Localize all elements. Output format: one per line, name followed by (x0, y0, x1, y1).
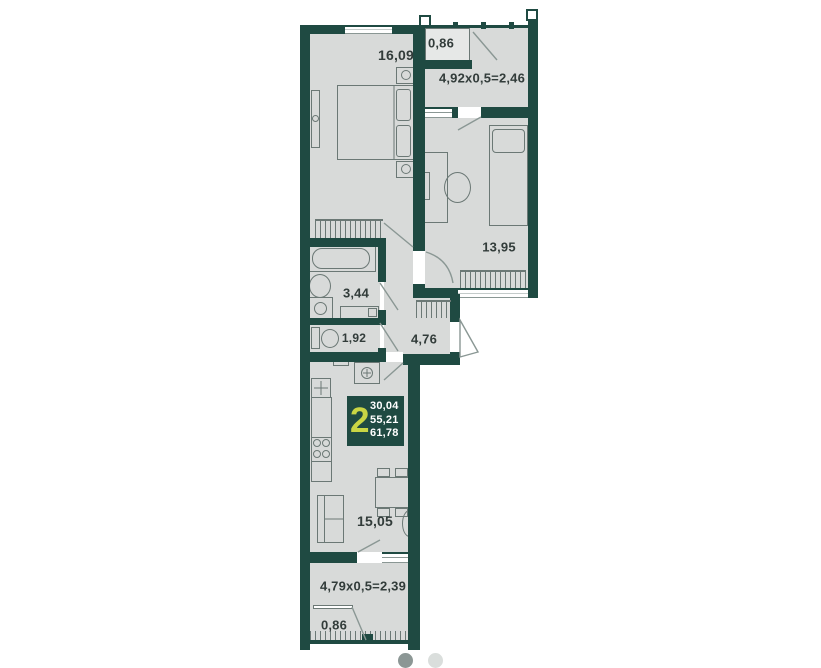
label-bedroom-main: 16,09 (378, 47, 414, 63)
toilet-tank (311, 327, 320, 349)
area-total: 61,78 (370, 427, 399, 441)
door-opening-bedroom-second (413, 251, 425, 284)
dresser-knob (312, 115, 319, 122)
bed-pillow-1 (396, 89, 411, 121)
window-balcony-top (425, 107, 452, 118)
label-balcony-bottom: 4,79x0,5=2,39 (320, 579, 406, 594)
wall-bath-toilet-divider (300, 318, 386, 325)
burner-3 (313, 450, 321, 458)
wall-bathroom-top (300, 238, 386, 247)
door-opening-kitchen (386, 352, 403, 362)
window-kitchen (382, 552, 408, 563)
entrance-opening (450, 322, 460, 352)
bathtub-inner (312, 248, 370, 269)
area-values: 30,04 55,21 61,78 (370, 400, 399, 441)
door-opening-balcony-top (458, 107, 481, 118)
bathroom-sink (309, 274, 331, 298)
entrance-door-leaf (460, 320, 478, 357)
label-toilet: 1,92 (342, 331, 366, 345)
wardrobe-hall (416, 300, 451, 318)
window-bedroom-second (458, 288, 528, 298)
label-balcony-top-closet: 0,86 (428, 36, 454, 51)
glazing-mullion-3 (509, 22, 514, 29)
nightstand-2-lamp (401, 164, 411, 174)
bathroom-cabinet-end (368, 308, 377, 317)
balcony-glazing-bottom (310, 640, 408, 644)
nightstand-1-lamp (401, 70, 411, 80)
glazing-post-left (419, 15, 431, 27)
label-bedroom-second: 13,95 (482, 240, 516, 255)
desk-chair (444, 172, 471, 203)
wall-bathroom-right-a (378, 240, 386, 282)
carousel-dot-inactive[interactable] (428, 653, 443, 668)
burner-1 (313, 439, 321, 447)
kitchen-sink-bowl (361, 367, 373, 379)
door-opening-balcony-bottom (357, 552, 382, 563)
wall-closet-top (420, 60, 472, 69)
window-bedroom-main (345, 25, 392, 34)
single-bed-pillow (492, 129, 525, 153)
dining-table (375, 477, 410, 508)
fridge (311, 378, 331, 398)
label-bathroom: 3,44 (343, 286, 369, 301)
wall-bedrooms-divider (413, 25, 425, 251)
room-corridor (384, 240, 414, 300)
area-main: 55,21 (370, 414, 399, 428)
wall-right (528, 20, 538, 298)
bed-pillow-2 (396, 125, 411, 157)
wall-toilet-bottom (300, 352, 386, 362)
label-balcony-top: 4,92x0,5=2,46 (439, 71, 525, 86)
burner-4 (322, 450, 330, 458)
chair-top-2 (395, 468, 408, 477)
wall-balcony-room-divider (481, 107, 538, 118)
carousel-dot-active[interactable] (398, 653, 413, 668)
burner-2 (322, 439, 330, 447)
balcony-glazing-bottom-post (362, 634, 373, 644)
label-hall: 4,76 (411, 332, 437, 347)
chair-top-1 (377, 468, 390, 477)
unit-area-badge: 2 30,04 55,21 61,78 (347, 396, 404, 446)
toilet-bowl (321, 329, 339, 348)
shelf-balcony-bottom (313, 605, 353, 609)
wall-entrance-top (450, 294, 460, 322)
wall-kitchen-right (408, 360, 420, 650)
label-kitchen-living: 15,05 (357, 513, 393, 529)
area-living: 30,04 (370, 400, 399, 414)
rooms-count: 2 (350, 398, 369, 444)
label-balcony-bottom-closet: 0,86 (321, 618, 347, 633)
floor-plan-canvas: 16,09 0,86 4,92x0,5=2,46 13,95 3,44 1,92… (0, 0, 821, 667)
glazing-mullion-2 (481, 22, 486, 29)
washing-machine-door (314, 302, 327, 315)
sofa-back (317, 495, 325, 543)
wall-kitchen-bottom (300, 552, 357, 563)
wall-top-left (300, 25, 345, 34)
radiator-bedroom-second (460, 270, 526, 289)
